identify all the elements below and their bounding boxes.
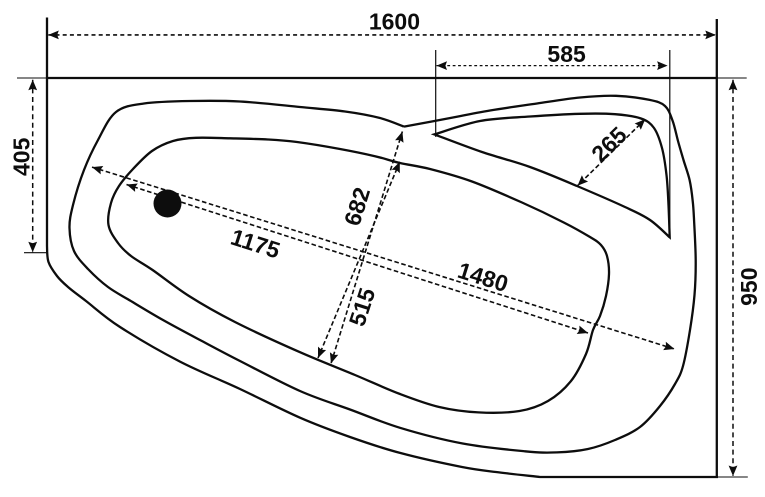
svg-text:515: 515 [344, 285, 381, 330]
svg-text:1600: 1600 [369, 8, 420, 34]
svg-text:405: 405 [9, 137, 35, 176]
svg-text:1480: 1480 [455, 257, 512, 297]
svg-text:265: 265 [586, 121, 632, 167]
svg-text:950: 950 [736, 268, 762, 306]
svg-text:1175: 1175 [228, 224, 284, 264]
svg-text:682: 682 [339, 184, 375, 228]
svg-text:585: 585 [547, 41, 586, 67]
